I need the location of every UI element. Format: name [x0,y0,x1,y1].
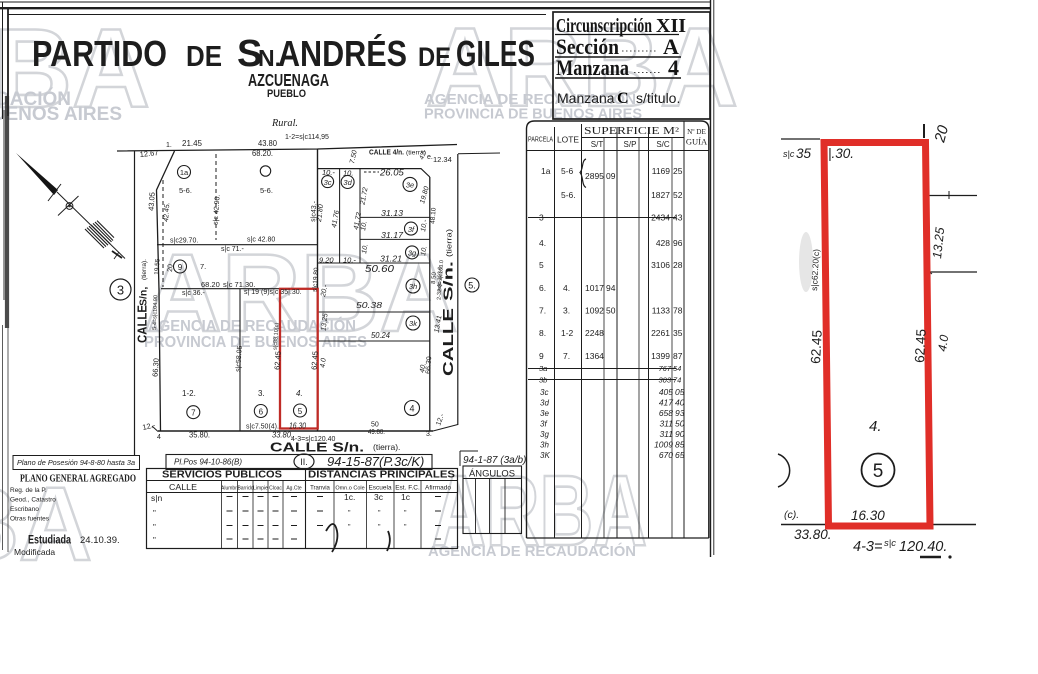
svg-text:66.30: 66.30 [151,358,161,377]
svg-text:43: 43 [673,213,683,223]
svg-text:12.67: 12.67 [139,148,159,159]
svg-text:94-15-87(P.3c/K): 94-15-87(P.3c/K) [327,454,424,469]
svg-text:3.: 3. [258,389,265,398]
svg-text:120.40.: 120.40. [899,539,947,555]
svg-text:Rural.: Rural. [271,117,298,129]
svg-text:s|n: s|n [151,493,162,503]
svg-text:": " [153,509,156,518]
svg-text:PARCELA: PARCELA [528,137,553,144]
svg-text:SERVICIOS PUBLICOS: SERVICIOS PUBLICOS [162,470,283,481]
svg-text:4: 4 [409,404,414,414]
svg-text:3f: 3f [540,420,547,429]
svg-text:3: 3 [539,213,544,223]
svg-text:68.20: 68.20 [201,280,220,289]
svg-text:3c: 3c [374,492,384,502]
svg-text:Limpie: Limpie [253,486,268,492]
svg-text:S/T: S/T [591,140,604,149]
svg-text:s|c29.70.: s|c29.70. [170,238,198,245]
svg-text:3h: 3h [409,282,417,291]
svg-text:3g: 3g [540,430,549,439]
svg-text:2248: 2248 [585,328,604,338]
svg-text:Modificada: Modificada [14,547,55,557]
svg-text:1c.: 1c. [344,492,355,502]
svg-text:": " [404,524,407,531]
svg-text:S/P: S/P [624,140,637,149]
svg-text:4.0: 4.0 [320,358,328,369]
svg-text:68.20.: 68.20. [252,149,273,158]
svg-text:DE: DE [418,42,451,72]
svg-text:2434: 2434 [651,213,670,223]
svg-text:DISTANCIAS PRINCIPALES: DISTANCIAS PRINCIPALES [308,470,456,481]
svg-text:09: 09 [606,171,616,181]
svg-text:3e: 3e [406,181,414,190]
svg-text:Geod., Catastro: Geod., Catastro [10,497,56,504]
svg-text:PARTIDO: PARTIDO [32,33,167,74]
svg-text:94: 94 [606,283,616,293]
svg-text:Alumbr.: Alumbr. [221,486,238,492]
svg-text:Plano de Posesión 94-8-80 hast: Plano de Posesión 94-8-80 hasta 3a [17,460,135,467]
svg-text:5-6.: 5-6. [179,186,192,195]
svg-text:42.45.: 42.45. [163,202,171,222]
svg-text:ÁNGULOS: ÁNGULOS [469,469,515,479]
svg-text:3k: 3k [409,319,418,328]
svg-text:": " [348,524,351,531]
svg-text:1133: 1133 [652,306,671,316]
svg-text:65: 65 [675,450,685,460]
svg-text:78: 78 [673,306,683,316]
svg-text:3d: 3d [343,178,352,187]
svg-text:Barrido: Barrido [237,486,253,492]
svg-text:Reg. de la P.: Reg. de la P. [10,487,47,494]
svg-text:1-2=s|c114,95: 1-2=s|c114,95 [285,134,329,141]
svg-text:5: 5 [539,260,544,270]
svg-text:33.80.: 33.80. [794,527,832,542]
svg-text:AGENCIA DE RECAUDACIÓN: AGENCIA DE RECAUDACIÓN [428,542,636,560]
svg-text:50.60: 50.60 [365,264,395,275]
svg-text:4.: 4. [869,418,882,435]
svg-text:1.: 1. [166,142,172,149]
svg-text:3.: 3. [426,431,432,438]
svg-text:LOTE: LOTE [557,135,579,145]
svg-text:50.24: 50.24 [371,331,391,340]
svg-text:10.-: 10.- [343,256,356,265]
svg-text:35: 35 [796,146,812,161]
svg-text:2-3=s|c 103.0: 2-3=s|c 103.0 [437,266,444,300]
svg-text:1092: 1092 [585,306,604,316]
svg-text:PUEBLO: PUEBLO [267,88,306,100]
svg-text:1009: 1009 [654,440,673,450]
svg-text:43.05: 43.05 [147,192,157,211]
svg-text:3b: 3b [539,376,547,385]
svg-text:Nº DE: Nº DE [687,128,706,136]
svg-text:311: 311 [659,429,673,439]
svg-text:Escribano: Escribano [10,506,39,513]
svg-text:50.38: 50.38 [356,300,382,310]
svg-text:21.72: 21.72 [359,187,369,207]
svg-text:4: 4 [157,434,161,441]
svg-text:3e: 3e [540,409,549,418]
svg-text:62.45: 62.45 [310,351,320,370]
svg-text:": " [378,524,381,531]
svg-text:s|c58.05: s|c58.05 [235,345,244,372]
svg-text:19.80: 19.80 [419,186,431,205]
svg-text:16.30: 16.30 [851,508,885,523]
svg-text:Estudiada: Estudiada [28,533,71,547]
svg-text:s|c 42.90.: s|c 42.90. [213,194,222,225]
svg-text:4-3=: 4-3= [853,539,882,555]
svg-text:62.45: 62.45 [273,351,283,370]
svg-text:|.30.: |.30. [828,146,854,161]
svg-text:CALLE S/n.: CALLE S/n. [270,440,364,455]
svg-text:6.: 6. [539,283,546,293]
svg-text:3d: 3d [540,399,549,408]
svg-text:e.: e. [427,154,433,161]
svg-text:Omn.o Cole: Omn.o Cole [335,486,364,492]
svg-text:PROVINCIA DE BUENOS AIRES: PROVINCIA DE BUENOS AIRES [424,107,642,123]
svg-text:s|c 71.-: s|c 71.- [221,246,244,253]
svg-text:74: 74 [673,376,681,385]
svg-text:3h: 3h [540,441,549,450]
svg-text:1169: 1169 [652,166,671,176]
svg-text:1399: 1399 [651,351,670,361]
svg-text:II.: II. [300,457,308,467]
svg-text:62.45: 62.45 [808,330,825,365]
svg-text:26.05: 26.05 [379,168,404,179]
svg-text:8.: 8. [539,328,546,338]
svg-text:1a: 1a [541,166,551,176]
svg-text:S/C: S/C [656,140,670,149]
svg-text:CALLE: CALLE [135,305,150,343]
svg-text:1364: 1364 [585,351,604,361]
svg-text:Otras fuentes: Otras fuentes [10,516,50,523]
svg-text:85: 85 [675,440,685,450]
svg-text:3.: 3. [563,306,570,316]
svg-text:50: 50 [606,306,616,316]
svg-text:3f: 3f [408,225,415,234]
svg-text:s|c 71.30.: s|c 71.30. [223,280,255,289]
svg-text:33.80.: 33.80. [272,431,293,440]
svg-text:s|c: s|c [783,149,795,159]
svg-text:52: 52 [673,190,683,200]
svg-text:35.80.: 35.80. [189,431,210,440]
svg-text:3a: 3a [539,364,547,373]
svg-text:31.21: 31.21 [380,254,402,264]
svg-text:(tierra).: (tierra). [141,259,148,280]
svg-text:28: 28 [673,260,683,270]
svg-text:43.80: 43.80 [258,139,278,148]
svg-text:3: 3 [117,283,124,298]
svg-text:s|c7.50(4).: s|c7.50(4). [246,424,279,431]
svg-text:5-6.: 5-6. [260,186,273,195]
svg-text:s| 19 (9)s|c 35|.30.: s| 19 (9)s|c 35|.30. [244,289,302,296]
svg-text:3g: 3g [408,249,417,258]
svg-text:48.10: 48.10 [430,207,438,224]
svg-text:GUÍA: GUÍA [686,137,708,147]
svg-text:Manzana: Manzana [556,55,629,80]
svg-text:428: 428 [656,238,670,248]
svg-text:54: 54 [673,364,681,373]
svg-text:9: 9 [539,351,544,361]
svg-text:Afirmado: Afirmado [425,485,451,492]
svg-text:4.: 4. [539,238,546,248]
svg-text:19.55: 19.55 [154,258,162,275]
svg-text:1017: 1017 [585,283,604,293]
svg-text:": " [153,523,156,532]
svg-text:40: 40 [675,398,685,408]
svg-text:C: C [617,90,629,107]
svg-text:9.20: 9.20 [319,256,334,265]
svg-text:405: 405 [659,387,673,397]
svg-text:2895: 2895 [585,171,604,181]
svg-text:21.45: 21.45 [182,139,203,148]
svg-text:SUPERFICIE M²: SUPERFICIE M² [584,126,679,137]
svg-text:Manzana: Manzana [557,90,615,106]
svg-text:62.45: 62.45 [912,329,929,364]
svg-text:5.: 5. [468,281,476,291]
svg-text:": " [348,510,351,517]
svg-text:96: 96 [673,238,683,248]
svg-text:5: 5 [873,461,884,482]
svg-text:PLANO GENERAL AGREGADO: PLANO GENERAL AGREGADO [20,474,136,485]
svg-text:13.25: 13.25 [930,227,947,260]
svg-text:": " [153,536,156,545]
svg-text:311: 311 [659,419,673,429]
svg-text:7.: 7. [200,262,206,271]
svg-text:767: 767 [658,364,671,373]
svg-text:Pl.Pos 94-10-86(B): Pl.Pos 94-10-86(B) [174,458,242,467]
svg-text:DE: DE [186,41,222,73]
svg-text:Ag.Cte: Ag.Cte [286,486,302,492]
svg-text:1a: 1a [180,168,189,177]
svg-text:4.: 4. [296,389,303,398]
svg-text:CALLE: CALLE [169,483,197,492]
svg-text:12.-: 12.- [142,420,157,432]
svg-text:5-6: 5-6 [561,166,574,176]
svg-text:9: 9 [178,263,183,272]
svg-text:6: 6 [259,408,264,417]
svg-text:31.13: 31.13 [381,208,403,218]
svg-text:35: 35 [673,328,683,338]
svg-text:4: 4 [668,55,679,80]
svg-text:7: 7 [191,409,196,418]
svg-text:Est. F.C.: Est. F.C. [395,485,420,492]
svg-text:3106: 3106 [651,260,670,270]
svg-text:(tierra): (tierra) [445,228,454,257]
svg-text:90: 90 [675,429,685,439]
svg-text:20: 20 [931,123,952,145]
svg-text:3c: 3c [540,388,548,397]
svg-text:417: 417 [659,398,673,408]
svg-text:Cloac: Cloac [269,486,282,492]
svg-text:16.30: 16.30 [289,422,306,431]
svg-text:(tierra).: (tierra). [373,442,400,452]
svg-text:2261: 2261 [651,328,670,338]
svg-text:Tranvia: Tranvia [310,486,330,492]
svg-text:GILES: GILES [456,33,535,74]
svg-text:12.-: 12.- [435,412,446,426]
svg-text:10.: 10. [360,220,369,231]
svg-text:1-2.: 1-2. [182,389,196,398]
svg-text:s|c 42.80: s|c 42.80 [247,237,275,244]
svg-text:AZCUENAGA: AZCUENAGA [248,70,329,90]
svg-text:": " [378,510,381,517]
svg-text:CALLE: CALLE [441,308,457,376]
svg-text:50: 50 [371,422,379,429]
svg-text:5-6.: 5-6. [561,190,576,200]
svg-text:s|c: s|c [884,538,896,549]
svg-text:94-1-87 (3a/b): 94-1-87 (3a/b) [463,455,526,466]
svg-text:93: 93 [675,408,685,418]
svg-text:7.: 7. [539,306,546,316]
svg-text:5: 5 [298,407,303,416]
svg-text:670: 670 [659,450,673,460]
svg-text:1827: 1827 [651,190,670,200]
svg-text:25: 25 [673,166,683,176]
svg-text:3K: 3K [540,451,550,460]
svg-text:3c: 3c [324,178,332,187]
svg-text:PROVINCIA DE BUENOS AIRES: PROVINCIA DE BUENOS AIRES [0,104,122,125]
svg-text:24.10.39.: 24.10.39. [80,535,120,546]
svg-text:50: 50 [675,419,685,429]
svg-text:4.0: 4.0 [935,334,951,353]
svg-text:7.50: 7.50 [349,150,359,165]
svg-text:658: 658 [659,408,673,418]
svg-text:CALLE 4/n.: CALLE 4/n. [369,148,404,157]
svg-text:": " [404,510,407,517]
svg-text:5-4=s|c104.90: 5-4=s|c104.90 [152,295,159,330]
svg-text:7.: 7. [563,351,570,361]
svg-text:303: 303 [658,376,671,385]
svg-text:1c: 1c [401,492,411,502]
svg-text:(c).: (c). [784,509,799,521]
svg-text:4.: 4. [563,283,570,293]
svg-text:12.34: 12.34 [433,155,452,164]
svg-text:31.17: 31.17 [381,230,403,240]
svg-text:Escuela: Escuela [368,485,392,492]
svg-text:ANDRÉS: ANDRÉS [278,33,407,74]
svg-text:10.-: 10.- [420,219,429,233]
svg-text:s|c 36.-: s|c 36.- [182,290,205,297]
svg-text:PROVINCIA DE BUENOS AIRES: PROVINCIA DE BUENOS AIRES [144,334,367,351]
svg-text:05: 05 [675,387,685,397]
svg-text:S/n,: S/n, [138,287,150,306]
svg-text:20: 20 [167,264,175,272]
svg-text:87: 87 [673,351,683,361]
svg-text:1-2: 1-2 [561,328,574,338]
svg-text:s/titulo.: s/titulo. [636,90,680,106]
svg-text:21.80: 21.80 [316,204,325,223]
